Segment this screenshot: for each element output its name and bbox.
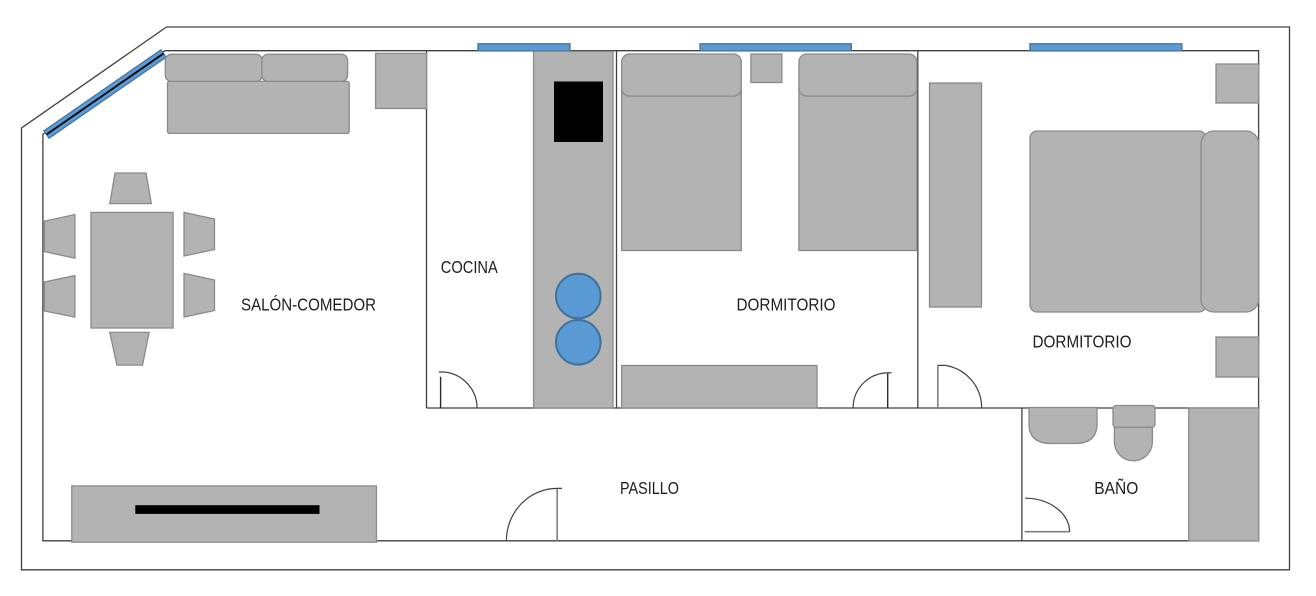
svg-text:SALÓN-COMEDOR: SALÓN-COMEDOR (241, 294, 376, 315)
svg-text:COCINA: COCINA (441, 257, 498, 277)
svg-text:BAÑO: BAÑO (1094, 477, 1138, 498)
svg-text:DORMITORIO: DORMITORIO (737, 294, 836, 314)
svg-text:DORMITORIO: DORMITORIO (1033, 331, 1132, 351)
svg-text:PASILLO: PASILLO (620, 478, 679, 498)
